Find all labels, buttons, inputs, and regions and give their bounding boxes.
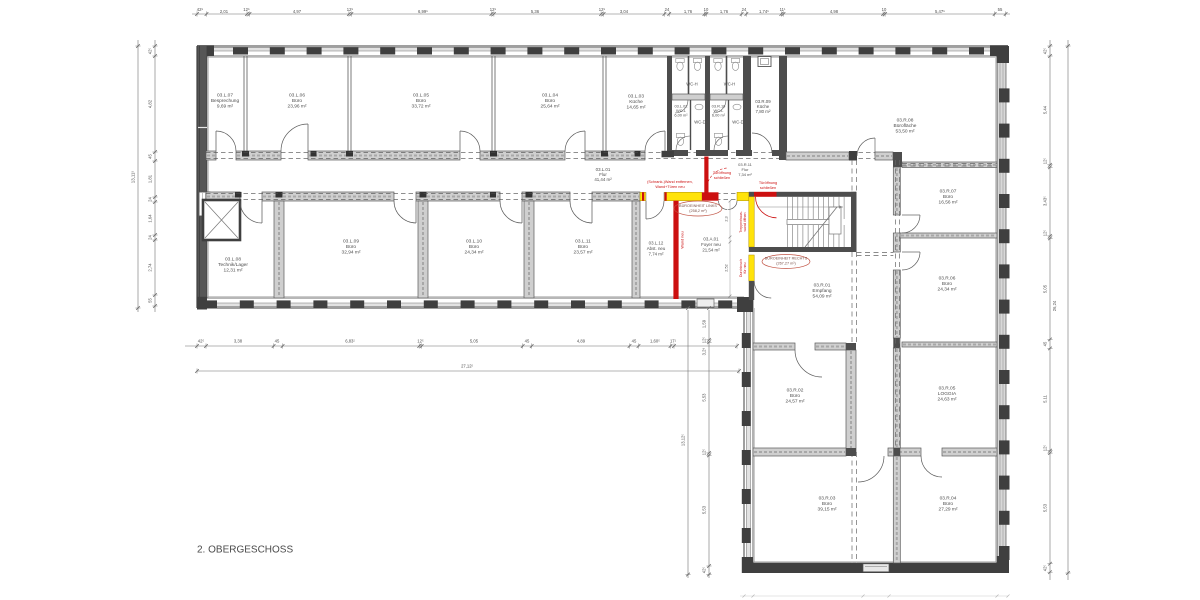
svg-text:5,53: 5,53 (702, 393, 707, 402)
svg-text:03.L.06: 03.L.06 (289, 92, 305, 98)
svg-text:45: 45 (275, 339, 280, 344)
svg-text:2. OBERGESCHOSS: 2. OBERGESCHOSS (197, 545, 293, 556)
svg-text:03.R.05: 03.R.05 (939, 385, 956, 391)
svg-text:23,96 m²: 23,96 m² (288, 104, 307, 110)
svg-text:1,76: 1,76 (684, 9, 693, 14)
svg-text:42⁵: 42⁵ (702, 567, 707, 574)
svg-text:12⁵: 12⁵ (347, 7, 354, 12)
svg-text:Büro: Büro (943, 194, 953, 200)
svg-text:schließen: schließen (714, 176, 730, 180)
svg-text:6,00 m²: 6,00 m² (674, 113, 688, 118)
svg-text:(267,27 m²): (267,27 m²) (776, 262, 796, 266)
svg-text:54,09 m²: 54,09 m² (813, 294, 832, 300)
svg-text:41,44 m²: 41,44 m² (594, 177, 612, 182)
svg-text:3,2⁹: 3,2⁹ (702, 347, 707, 355)
svg-text:24: 24 (742, 7, 747, 12)
svg-text:27,12²: 27,12² (461, 364, 473, 369)
svg-text:23,57 m²: 23,57 m² (574, 250, 593, 256)
svg-text:12⁵: 12⁵ (417, 339, 424, 344)
svg-text:53,50 m²: 53,50 m² (896, 129, 915, 135)
svg-text:Abst. neu: Abst. neu (647, 246, 666, 251)
svg-text:5,44: 5,44 (1043, 105, 1048, 114)
svg-text:Büro: Büro (942, 281, 952, 287)
svg-text:12⁵: 12⁵ (702, 449, 707, 456)
svg-text:5,05: 5,05 (470, 339, 479, 344)
svg-text:42⁵: 42⁵ (1043, 565, 1048, 572)
svg-text:Büro: Büro (416, 98, 426, 104)
svg-text:11¹: 11¹ (780, 7, 786, 12)
svg-text:03.L.03: 03.L.03 (628, 93, 644, 99)
svg-text:12⁵: 12⁵ (702, 337, 707, 344)
svg-text:03.R.06: 03.R.06 (939, 275, 956, 281)
svg-text:BÜROEINHEIT RECHTS: BÜROEINHEIT RECHTS (765, 257, 808, 261)
svg-text:45: 45 (1043, 341, 1048, 346)
svg-text:7,74 m²: 7,74 m² (649, 252, 664, 257)
svg-text:26,24: 26,24 (1052, 300, 1057, 311)
svg-text:Büro: Büro (346, 244, 356, 250)
svg-text:12⁵: 12⁵ (599, 7, 606, 12)
svg-text:12,31 m²: 12,31 m² (224, 268, 243, 274)
svg-text:WC-H: WC-H (724, 82, 735, 87)
svg-text:03.L.07: 03.L.07 (217, 92, 233, 98)
svg-text:24,63 m²: 24,63 m² (938, 397, 957, 403)
svg-text:03.R.04: 03.R.04 (940, 495, 957, 501)
svg-text:Büro: Büro (943, 501, 953, 507)
svg-text:03.A.01: 03.A.01 (703, 236, 719, 241)
svg-text:24,57 m²: 24,57 m² (786, 399, 805, 405)
svg-text:Besprechung: Besprechung (211, 98, 240, 104)
svg-text:Empfang: Empfang (812, 288, 832, 294)
svg-text:Büro: Büro (292, 98, 302, 104)
svg-text:24: 24 (148, 197, 153, 202)
svg-text:03.L.11: 03.L.11 (575, 238, 591, 244)
svg-text:14,65 m²: 14,65 m² (627, 105, 646, 111)
svg-text:Büro: Büro (545, 98, 555, 104)
svg-text:Küche: Küche (629, 99, 643, 105)
svg-text:2,01: 2,01 (220, 9, 229, 14)
svg-text:BÜROEINHEIT LINKS: BÜROEINHEIT LINKS (679, 204, 717, 208)
svg-text:45: 45 (148, 154, 153, 159)
svg-text:1,59: 1,59 (702, 319, 707, 328)
svg-text:12⁵: 12⁵ (243, 7, 250, 12)
svg-text:45: 45 (632, 339, 637, 344)
svg-text:12⁵: 12⁵ (1043, 445, 1048, 452)
svg-text:3,43⁵: 3,43⁵ (1043, 196, 1048, 206)
svg-text:45: 45 (525, 339, 530, 344)
svg-text:5,11: 5,11 (1043, 394, 1048, 403)
svg-text:2,52: 2,52 (724, 264, 728, 271)
svg-text:03.R.07: 03.R.07 (940, 188, 957, 194)
svg-text:5,47⁵: 5,47⁵ (935, 9, 945, 14)
svg-text:Büro: Büro (822, 501, 832, 507)
svg-text:für neu: für neu (743, 263, 747, 274)
svg-text:5,05: 5,05 (1043, 284, 1048, 293)
svg-text:Wand+Türen neu: Wand+Türen neu (655, 185, 684, 189)
svg-text:5,36: 5,36 (531, 9, 540, 14)
svg-text:wand öffnen: wand öffnen (743, 212, 747, 231)
svg-text:42⁵: 42⁵ (198, 339, 205, 344)
svg-text:Büro: Büro (469, 244, 479, 250)
svg-text:1,60⁵: 1,60⁵ (650, 339, 660, 344)
svg-text:WC-D: WC-D (694, 120, 705, 125)
svg-text:03.L.04: 03.L.04 (542, 92, 558, 98)
svg-text:WC-D: WC-D (732, 120, 743, 125)
svg-text:10: 10 (882, 7, 887, 12)
svg-text:42⁵: 42⁵ (197, 7, 204, 12)
svg-text:schließen: schließen (760, 186, 776, 190)
svg-text:3,04: 3,04 (620, 9, 629, 14)
svg-text:03.L.10: 03.L.10 (466, 238, 482, 244)
svg-text:12⁵: 12⁵ (490, 7, 497, 12)
svg-text:1,74⁵: 1,74⁵ (759, 9, 769, 14)
svg-text:1,81: 1,81 (148, 174, 153, 183)
svg-text:24: 24 (665, 7, 670, 12)
svg-text:03.L.05: 03.L.05 (413, 92, 429, 98)
svg-text:24: 24 (148, 235, 153, 240)
svg-text:42⁵: 42⁵ (1043, 48, 1048, 55)
svg-text:9,69 m²: 9,69 m² (217, 104, 234, 110)
svg-text:03.L.09: 03.L.09 (343, 238, 359, 244)
svg-text:2,74: 2,74 (148, 263, 153, 272)
svg-text:4,97: 4,97 (293, 9, 302, 14)
svg-text:Türöffnung: Türöffnung (759, 181, 777, 185)
svg-text:5,53: 5,53 (1043, 503, 1048, 512)
svg-text:12⁵: 12⁵ (1043, 158, 1048, 165)
svg-text:7,34 m²: 7,34 m² (738, 172, 752, 177)
svg-text:Foyer neu: Foyer neu (701, 242, 721, 247)
svg-text:6,00 m²: 6,00 m² (712, 113, 726, 118)
svg-text:25,64 m²: 25,64 m² (541, 104, 560, 110)
svg-text:4,82: 4,82 (148, 99, 153, 108)
svg-text:Büro: Büro (578, 244, 588, 250)
svg-text:03.R.01: 03.R.01 (814, 282, 831, 288)
svg-text:5,53: 5,53 (702, 505, 707, 514)
svg-text:Türöffnung: Türöffnung (713, 171, 731, 175)
svg-text:27,29 m²: 27,29 m² (939, 507, 958, 513)
svg-text:55: 55 (148, 298, 153, 303)
svg-text:7,80 m²: 7,80 m² (756, 109, 771, 114)
svg-text:39,15 m²: 39,15 m² (818, 507, 837, 513)
svg-text:(258,2 m²): (258,2 m²) (689, 209, 707, 213)
svg-text:4,98: 4,98 (830, 9, 839, 14)
svg-text:12⁵: 12⁵ (1043, 230, 1048, 237)
svg-text:24,34 m²: 24,34 m² (938, 287, 957, 293)
svg-text:55: 55 (998, 7, 1003, 12)
svg-text:17¹: 17¹ (670, 339, 677, 344)
svg-text:33,72 m²: 33,72 m² (412, 104, 431, 110)
svg-text:10: 10 (704, 7, 709, 12)
svg-text:32,94 m²: 32,94 m² (342, 250, 361, 256)
svg-text:(Schrank-)Wand entfernen,: (Schrank-)Wand entfernen, (647, 180, 693, 184)
svg-text:WC-H: WC-H (686, 82, 697, 87)
svg-text:24,34 m²: 24,34 m² (465, 250, 484, 256)
svg-text:03.R.03: 03.R.03 (819, 495, 836, 501)
svg-text:3,38: 3,38 (234, 339, 243, 344)
svg-text:16,56 m²: 16,56 m² (939, 200, 958, 206)
svg-text:Bürofläche: Bürofläche (894, 123, 917, 129)
svg-text:03.R.08: 03.R.08 (897, 117, 914, 123)
svg-text:03.L.12: 03.L.12 (649, 240, 664, 245)
svg-text:03.L.08: 03.L.08 (225, 256, 241, 262)
svg-text:1,76: 1,76 (720, 9, 729, 14)
svg-text:Büro: Büro (790, 393, 800, 399)
svg-text:4,89: 4,89 (577, 339, 586, 344)
svg-text:13,11⁵: 13,11⁵ (131, 171, 136, 184)
svg-text:Technik/Lager: Technik/Lager (218, 262, 248, 268)
svg-text:1,64: 1,64 (148, 214, 153, 223)
svg-text:13,12⁵: 13,12⁵ (681, 434, 686, 446)
svg-text:Wand neu: Wand neu (681, 231, 685, 248)
svg-text:6,99⁵: 6,99⁵ (418, 9, 428, 14)
svg-text:2,3: 2,3 (724, 216, 728, 221)
svg-text:6,83²: 6,83² (345, 339, 355, 344)
svg-text:21,54 m²: 21,54 m² (702, 248, 720, 253)
svg-text:03.R.02: 03.R.02 (787, 387, 804, 393)
svg-text:LOGGIA: LOGGIA (938, 391, 957, 397)
svg-text:42⁵: 42⁵ (148, 48, 153, 55)
